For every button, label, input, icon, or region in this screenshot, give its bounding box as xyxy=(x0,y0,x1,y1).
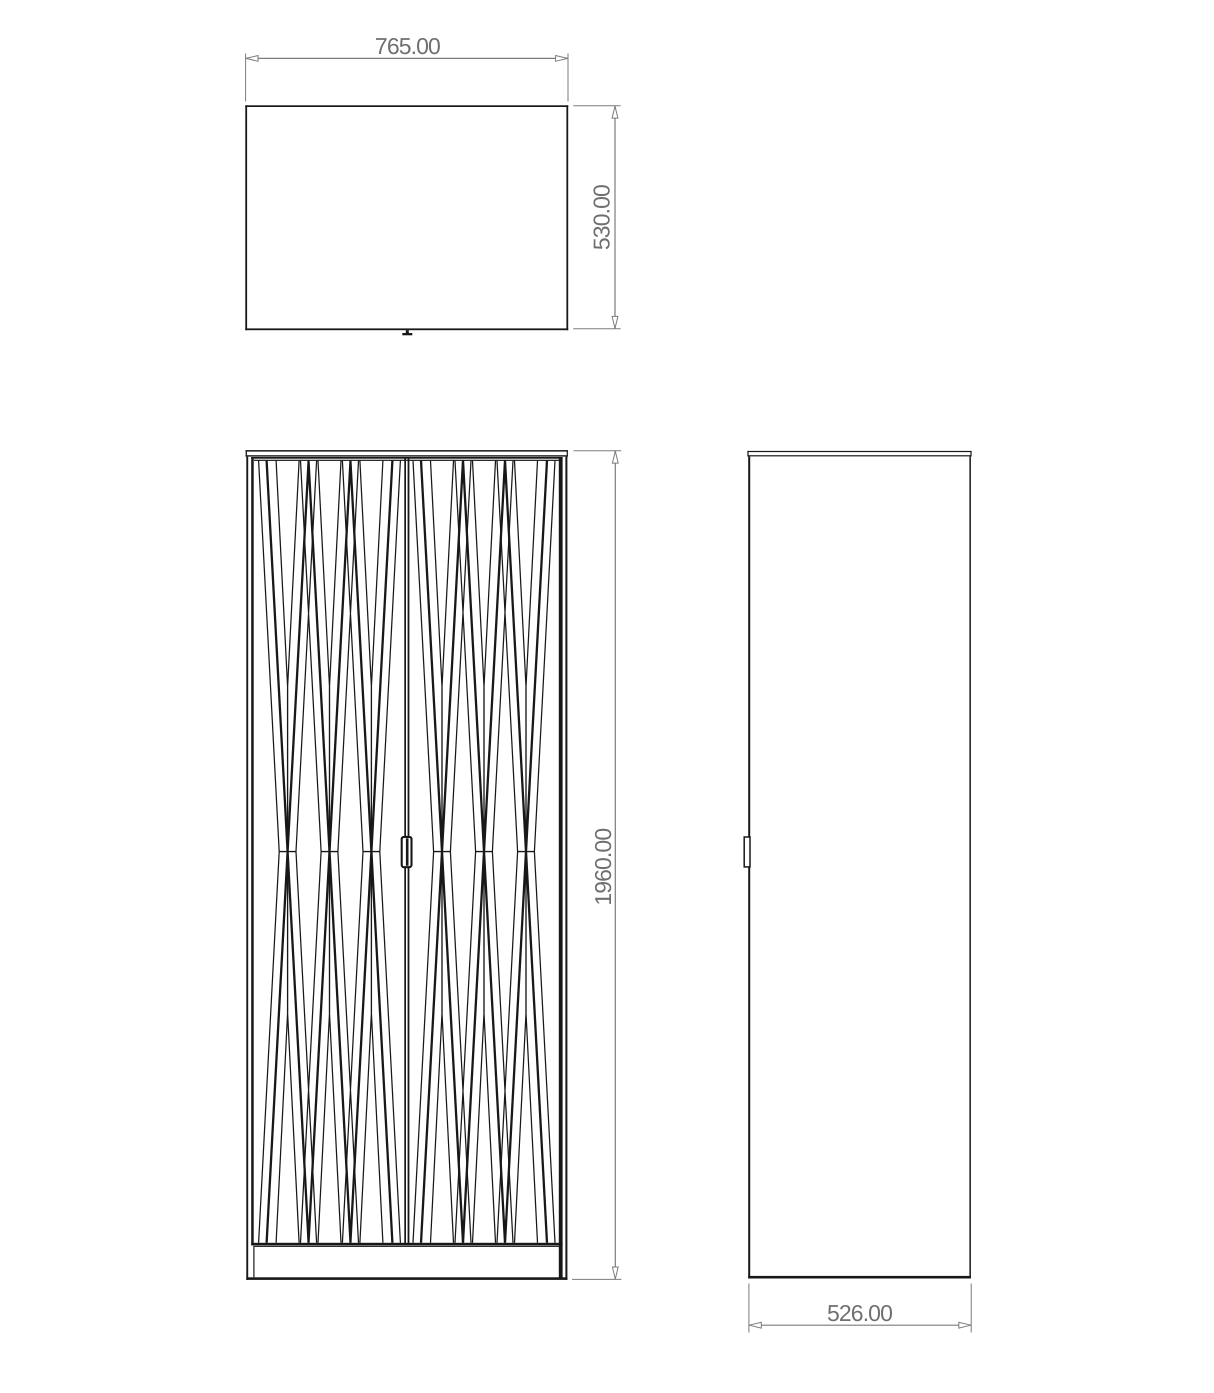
svg-text:530.00: 530.00 xyxy=(589,185,615,250)
svg-text:1960.00: 1960.00 xyxy=(590,829,616,906)
svg-text:526.00: 526.00 xyxy=(827,1300,892,1326)
svg-text:765.00: 765.00 xyxy=(375,33,440,59)
